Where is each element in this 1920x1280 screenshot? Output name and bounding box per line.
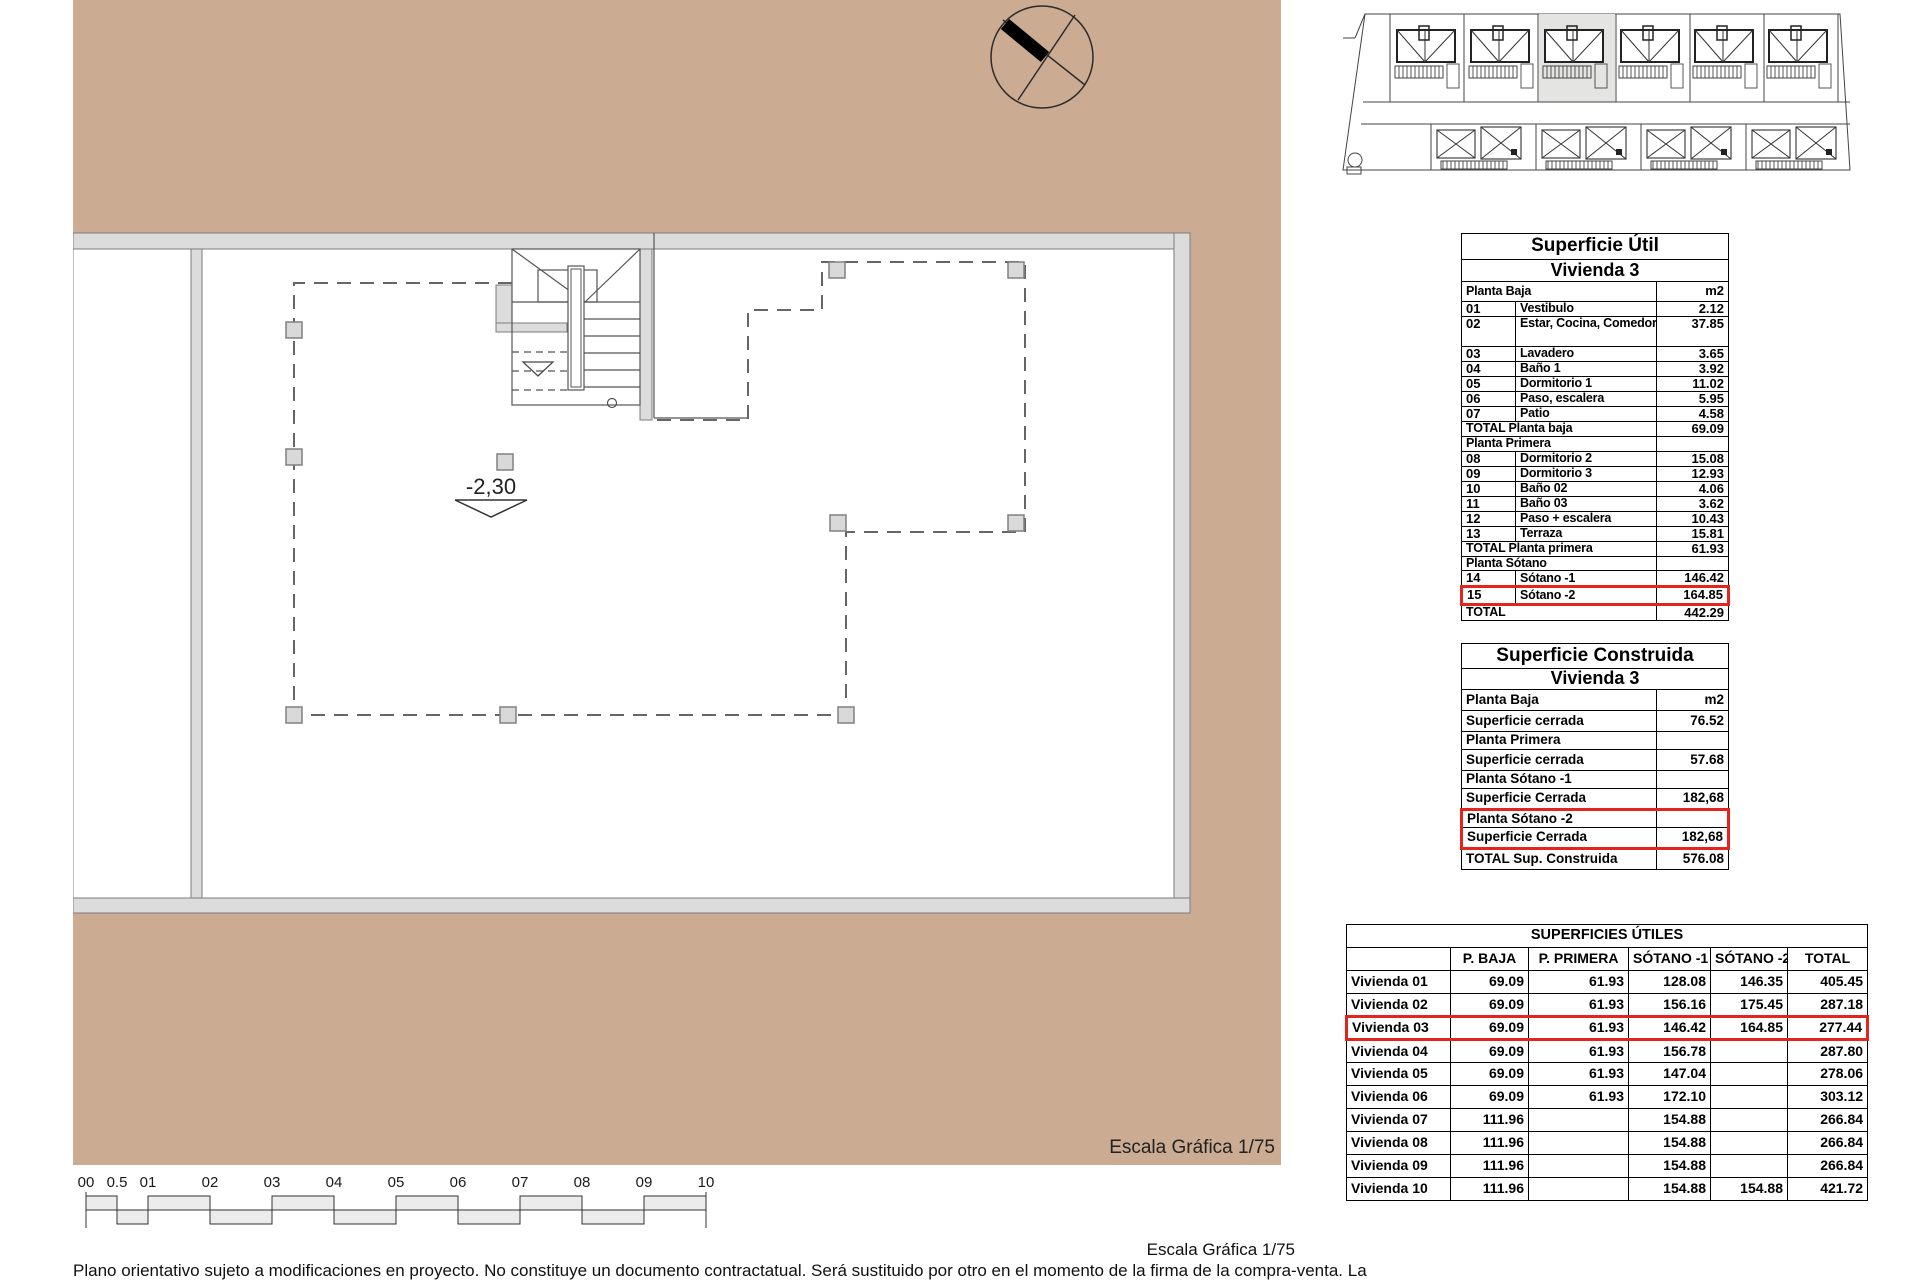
table-cell: Vivienda 04: [1347, 1040, 1451, 1063]
table-cell: 10.43: [1657, 511, 1729, 526]
table-cell: SUPERFICIES ÚTILES: [1347, 925, 1868, 948]
table-cell: 02: [1462, 317, 1516, 347]
graphic-scale-bar: 00 0.5 01 02 03 04 05 06 07 08 09 10: [73, 1172, 733, 1234]
basement-rooms: [73, 249, 1174, 898]
table-cell: TOTAL Planta primera: [1462, 541, 1657, 556]
table-row: 03Lavadero3.65: [1462, 347, 1729, 362]
footer-scale-label: Escala Gráfica 1/75: [1100, 1240, 1295, 1260]
table-cell: Vivienda 3: [1462, 260, 1729, 282]
table-cell: Baño 03: [1516, 496, 1657, 511]
table-cell: [1347, 948, 1451, 971]
table-row: 05Dormitorio 111.02: [1462, 377, 1729, 392]
table-cell: 61.93: [1529, 1017, 1629, 1040]
table-cell: [1529, 1178, 1629, 1201]
table-cell: Vivienda 06: [1347, 1086, 1451, 1109]
table-cell: 172.10: [1629, 1086, 1711, 1109]
table-cell: 175.45: [1711, 994, 1788, 1017]
table-row: 10Baño 024.06: [1462, 481, 1729, 496]
table-cell: 13: [1462, 526, 1516, 541]
svg-text:00: 00: [78, 1174, 95, 1191]
table-row: Planta Primera: [1462, 732, 1729, 750]
plan-sheet: -2,30 Escala Gráfica 1/75: [0, 0, 1920, 1280]
table-cell: 154.88: [1629, 1178, 1711, 1201]
svg-text:08: 08: [574, 1174, 591, 1191]
table-row: Vivienda 0569.0961.93147.04278.06: [1347, 1063, 1868, 1086]
table-cell: [1711, 1109, 1788, 1132]
table-cell: 3.92: [1657, 362, 1729, 377]
table-cell: 61.93: [1529, 1040, 1629, 1063]
table-cell: 69.09: [1451, 1040, 1529, 1063]
table-cell: Vivienda 02: [1347, 994, 1451, 1017]
svg-text:07: 07: [512, 1174, 529, 1191]
table-title-row: Superficie Construida: [1462, 644, 1729, 669]
table-cell: 164.85: [1711, 1017, 1788, 1040]
table-header-row: P. BAJAP. PRIMERASÓTANO -1SÓTANO -2TOTAL: [1347, 948, 1868, 971]
table-cell: Vivienda 07: [1347, 1109, 1451, 1132]
table-cell: 405.45: [1788, 971, 1868, 994]
table-cell: 76.52: [1657, 711, 1729, 732]
table-cell: Planta Baja: [1462, 690, 1657, 711]
table-row: Vivienda 09111.96154.88266.84: [1347, 1155, 1868, 1178]
table-row: Planta Bajam2: [1462, 690, 1729, 711]
table-cell: Patio: [1516, 407, 1657, 422]
table-cell: 442.29: [1657, 604, 1729, 620]
table-cell: Dormitorio 1: [1516, 377, 1657, 392]
table-cell: Planta Sótano -1: [1462, 771, 1657, 789]
table-cell: Superficie cerrada: [1462, 750, 1657, 771]
table-cell: Planta Sótano: [1462, 556, 1657, 571]
svg-text:01: 01: [140, 1174, 157, 1191]
table-cell: [1711, 1132, 1788, 1155]
table-cell: Dormitorio 2: [1516, 451, 1657, 466]
table-cell: Superficie cerrada: [1462, 711, 1657, 732]
table-cell: Baño 1: [1516, 362, 1657, 377]
table-cell: [1711, 1155, 1788, 1178]
table-cell: Vivienda 01: [1347, 971, 1451, 994]
table-row: Planta Bajam2: [1462, 282, 1729, 302]
table-row: 08Dormitorio 215.08: [1462, 451, 1729, 466]
table-subtitle-row: Vivienda 3: [1462, 669, 1729, 690]
table-cell: [1711, 1063, 1788, 1086]
table-cell: 182,68: [1657, 789, 1729, 810]
table-cell: 57.68: [1657, 750, 1729, 771]
table-cell: [1657, 732, 1729, 750]
table-row: 11Baño 033.62: [1462, 496, 1729, 511]
table-row: 12Paso + escalera10.43: [1462, 511, 1729, 526]
table-cell: Sótano -1: [1516, 571, 1657, 587]
table-cell: 154.88: [1629, 1109, 1711, 1132]
svg-text:0.5: 0.5: [107, 1174, 128, 1191]
table-cell: Vivienda 05: [1347, 1063, 1451, 1086]
table-cell: m2: [1657, 282, 1729, 302]
table-cell: 164.85: [1657, 587, 1729, 604]
table-superficies-utiles-resumen: SUPERFICIES ÚTILESP. BAJAP. PRIMERASÓTAN…: [1345, 924, 1869, 1201]
scale-bar-labels: 00 0.5 01 02 03 04 05 06 07 08 09 10: [78, 1174, 715, 1191]
table-cell: 146.42: [1629, 1017, 1711, 1040]
table-cell: Paso + escalera: [1516, 511, 1657, 526]
table-cell: 266.84: [1788, 1109, 1868, 1132]
table-cell: 3.62: [1657, 496, 1729, 511]
footer-disclaimer: Plano orientativo sujeto a modificacione…: [73, 1261, 1573, 1280]
svg-text:09: 09: [636, 1174, 653, 1191]
table-cell: 61.93: [1529, 971, 1629, 994]
table-cell: 69.09: [1451, 971, 1529, 994]
table-cell: Superficie Construida: [1462, 644, 1729, 669]
table-cell: 69.09: [1657, 422, 1729, 437]
table-cell: Vivienda 03: [1347, 1017, 1451, 1040]
table-row: Planta Sótano: [1462, 556, 1729, 571]
table-cell: Superficie Útil: [1462, 234, 1729, 260]
table-row: Vivienda 0669.0961.93172.10303.12: [1347, 1086, 1868, 1109]
site-plan-thumbnail: [1335, 4, 1863, 176]
table-cell: 266.84: [1788, 1155, 1868, 1178]
table-cell: Vivienda 10: [1347, 1178, 1451, 1201]
table-row: TOTAL Sup. Construida576.08: [1462, 849, 1729, 870]
table-row: Vivienda 0369.0961.93146.42164.85277.44: [1347, 1017, 1868, 1040]
table-cell: 37.85: [1657, 317, 1729, 347]
table-cell: 111.96: [1451, 1132, 1529, 1155]
table-cell: 69.09: [1451, 1063, 1529, 1086]
table-cell: 69.09: [1451, 1017, 1529, 1040]
table-cell: 61.93: [1529, 994, 1629, 1017]
table-cell: Estar, Cocina, Comedor: [1516, 317, 1657, 347]
svg-text:03: 03: [264, 1174, 281, 1191]
table-cell: Paso, escalera: [1516, 392, 1657, 407]
table-cell: 2.12: [1657, 302, 1729, 317]
table-cell: Vivienda 3: [1462, 669, 1729, 690]
table-cell: 147.04: [1629, 1063, 1711, 1086]
table-cell: P. PRIMERA: [1529, 948, 1629, 971]
table-cell: TOTAL Sup. Construida: [1462, 849, 1657, 870]
table-cell: [1657, 556, 1729, 571]
table-cell: Vestibulo: [1516, 302, 1657, 317]
table-cell: Planta Primera: [1462, 732, 1657, 750]
table-cell: 146.35: [1711, 971, 1788, 994]
table-cell: [1529, 1109, 1629, 1132]
table-row: Vivienda 10111.96154.88154.88421.72: [1347, 1178, 1868, 1201]
table-row: Superficie Cerrada182,68: [1462, 789, 1729, 810]
table-cell: 111.96: [1451, 1155, 1529, 1178]
table-row: Vivienda 0169.0961.93128.08146.35405.45: [1347, 971, 1868, 994]
svg-text:02: 02: [202, 1174, 219, 1191]
svg-text:04: 04: [326, 1174, 343, 1191]
table-cell: TOTAL Planta baja: [1462, 422, 1657, 437]
table-row: 06Paso, escalera5.95: [1462, 392, 1729, 407]
table-cell: 4.06: [1657, 481, 1729, 496]
table-cell: 08: [1462, 451, 1516, 466]
table-cell: 01: [1462, 302, 1516, 317]
table-row: Vivienda 08111.96154.88266.84: [1347, 1132, 1868, 1155]
table-cell: 146.42: [1657, 571, 1729, 587]
table-row: 09Dormitorio 312.93: [1462, 466, 1729, 481]
table-cell: 61.93: [1657, 541, 1729, 556]
table-cell: [1529, 1155, 1629, 1178]
table-cell: 5.95: [1657, 392, 1729, 407]
table-cell: 05: [1462, 377, 1516, 392]
table-cell: [1657, 771, 1729, 789]
table-cell: 14: [1462, 571, 1516, 587]
table-row: 15Sótano -2164.85: [1462, 587, 1729, 604]
table-cell: Sótano -2: [1516, 587, 1657, 604]
table-row: 13Terraza15.81: [1462, 526, 1729, 541]
table-cell: 15.08: [1657, 451, 1729, 466]
table-row: 04Baño 13.92: [1462, 362, 1729, 377]
table-cell: 61.93: [1529, 1086, 1629, 1109]
table-cell: TOTAL: [1788, 948, 1868, 971]
table-cell: 156.78: [1629, 1040, 1711, 1063]
table-cell: Dormitorio 3: [1516, 466, 1657, 481]
table-row: Superficie cerrada57.68: [1462, 750, 1729, 771]
table-row: Vivienda 0269.0961.93156.16175.45287.18: [1347, 994, 1868, 1017]
table-cell: 287.18: [1788, 994, 1868, 1017]
table-cell: Terraza: [1516, 526, 1657, 541]
table-cell: SÓTANO -1: [1629, 948, 1711, 971]
table-row: 14Sótano -1146.42: [1462, 571, 1729, 587]
site-tree: [1348, 153, 1362, 167]
table-cell: P. BAJA: [1451, 948, 1529, 971]
table-cell: [1657, 437, 1729, 452]
table-cell: Vivienda 09: [1347, 1155, 1451, 1178]
table-cell: [1711, 1086, 1788, 1109]
table-cell: 11.02: [1657, 377, 1729, 392]
table-cell: 278.06: [1788, 1063, 1868, 1086]
table-cell: 576.08: [1657, 849, 1729, 870]
table-row: Superficie cerrada76.52: [1462, 711, 1729, 732]
table-superficie-construida: Superficie ConstruidaVivienda 3Planta Ba…: [1460, 643, 1730, 870]
plan-scale-label: Escala Gráfica 1/75: [1050, 1137, 1275, 1159]
table-cell: Planta Sótano -2: [1462, 810, 1657, 828]
svg-text:06: 06: [450, 1174, 467, 1191]
table-title-row: SUPERFICIES ÚTILES: [1347, 925, 1868, 948]
table-cell: 111.96: [1451, 1109, 1529, 1132]
table-row: TOTAL Planta baja69.09: [1462, 422, 1729, 437]
svg-text:10: 10: [698, 1174, 715, 1191]
table-row: Vivienda 0469.0961.93156.78287.80: [1347, 1040, 1868, 1063]
table-row: Superficie Cerrada182,68: [1462, 828, 1729, 849]
table-cell: 09: [1462, 466, 1516, 481]
table-title-row: Superficie Útil: [1462, 234, 1729, 260]
table-cell: Baño 02: [1516, 481, 1657, 496]
table-row: TOTAL Planta primera61.93: [1462, 541, 1729, 556]
table-cell: 10: [1462, 481, 1516, 496]
table-cell: 12.93: [1657, 466, 1729, 481]
table-cell: 266.84: [1788, 1132, 1868, 1155]
floor-plan: [73, 0, 1281, 1165]
table-cell: 3.65: [1657, 347, 1729, 362]
table-subtitle-row: Vivienda 3: [1462, 260, 1729, 282]
table-cell: Lavadero: [1516, 347, 1657, 362]
table-row: Planta Sótano -1: [1462, 771, 1729, 789]
table-cell: 277.44: [1788, 1017, 1868, 1040]
table-cell: 15: [1462, 587, 1516, 604]
table-row: Vivienda 07111.96154.88266.84: [1347, 1109, 1868, 1132]
table-cell: 04: [1462, 362, 1516, 377]
table-superficie-util: Superficie ÚtilVivienda 3Planta Bajam201…: [1460, 233, 1730, 621]
table-cell: 06: [1462, 392, 1516, 407]
table-row: Planta Primera: [1462, 437, 1729, 452]
table-cell: 154.88: [1629, 1132, 1711, 1155]
table-row: TOTAL442.29: [1462, 604, 1729, 620]
table-cell: 287.80: [1788, 1040, 1868, 1063]
table-cell: 156.16: [1629, 994, 1711, 1017]
table-cell: [1657, 810, 1729, 828]
table-cell: [1711, 1040, 1788, 1063]
table-cell: 154.88: [1711, 1178, 1788, 1201]
table-cell: 69.09: [1451, 1086, 1529, 1109]
table-cell: 03: [1462, 347, 1516, 362]
table-row: Planta Sótano -2: [1462, 810, 1729, 828]
table-cell: 154.88: [1629, 1155, 1711, 1178]
table-row: 01Vestibulo2.12: [1462, 302, 1729, 317]
table-cell: 11: [1462, 496, 1516, 511]
table-cell: Planta Primera: [1462, 437, 1657, 452]
table-cell: 12: [1462, 511, 1516, 526]
table-cell: TOTAL: [1462, 604, 1657, 620]
table-cell: Vivienda 08: [1347, 1132, 1451, 1155]
table-cell: 15.81: [1657, 526, 1729, 541]
table-row: 07Patio4.58: [1462, 407, 1729, 422]
svg-text:05: 05: [388, 1174, 405, 1191]
table-cell: 61.93: [1529, 1063, 1629, 1086]
table-cell: SÓTANO -2: [1711, 948, 1788, 971]
table-cell: [1529, 1132, 1629, 1155]
table-cell: Superficie Cerrada: [1462, 828, 1657, 849]
table-cell: 303.12: [1788, 1086, 1868, 1109]
table-cell: 111.96: [1451, 1178, 1529, 1201]
table-cell: Planta Baja: [1462, 282, 1657, 302]
bottom-row-houses: [1437, 127, 1836, 169]
table-cell: Superficie Cerrada: [1462, 789, 1657, 810]
table-row: 02Estar, Cocina, Comedor37.85: [1462, 317, 1729, 347]
table-cell: 4.58: [1657, 407, 1729, 422]
table-cell: 421.72: [1788, 1178, 1868, 1201]
table-cell: m2: [1657, 690, 1729, 711]
table-cell: 128.08: [1629, 971, 1711, 994]
table-cell: 07: [1462, 407, 1516, 422]
table-cell: 69.09: [1451, 994, 1529, 1017]
table-cell: 182,68: [1657, 828, 1729, 849]
level-label: -2,30: [446, 474, 536, 500]
